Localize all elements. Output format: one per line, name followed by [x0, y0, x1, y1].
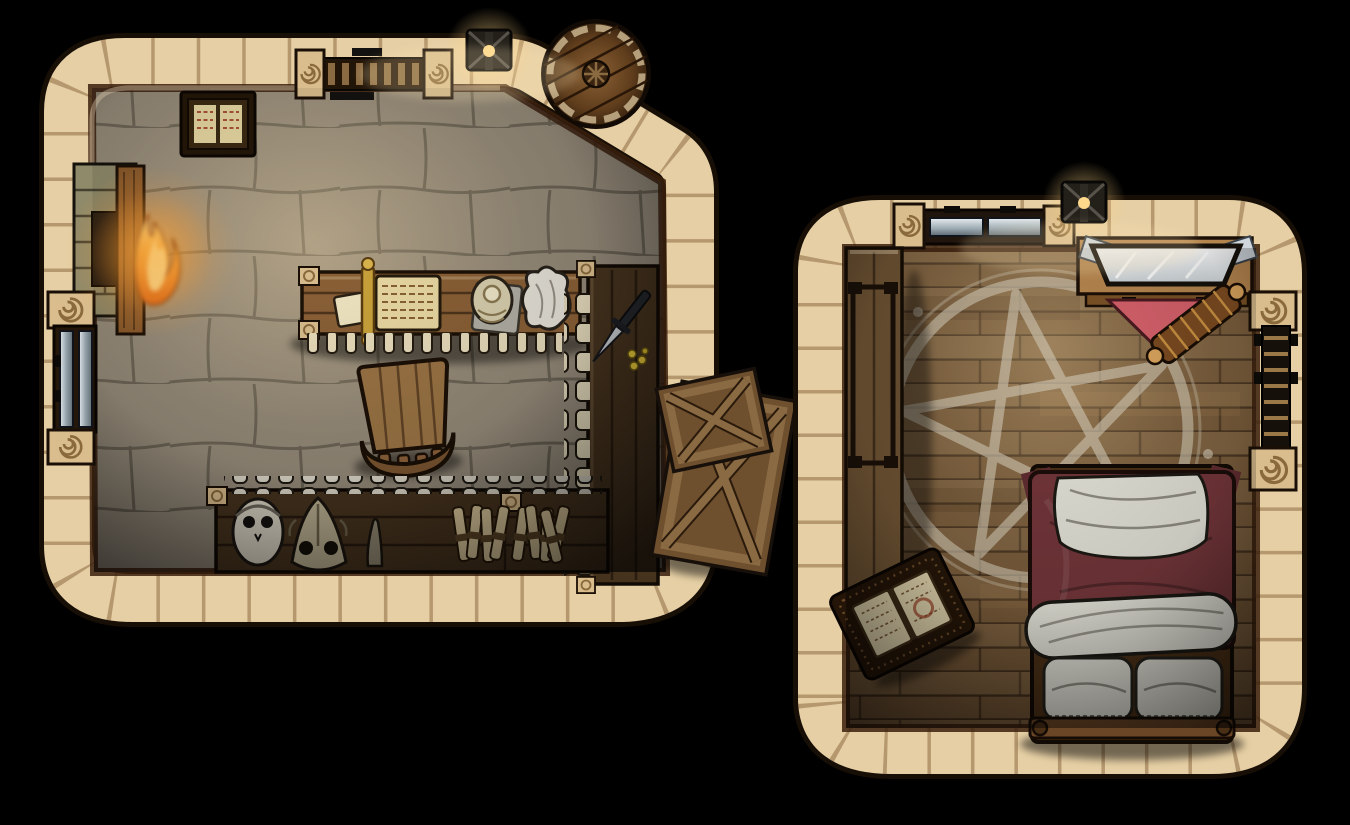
battlemap-stage — [0, 0, 1350, 825]
wall-light-patch — [960, 222, 1200, 274]
fire-floor-glow — [66, 166, 238, 338]
door-handle — [55, 355, 61, 367]
battlemap — [0, 0, 1350, 825]
door-handle — [55, 390, 61, 402]
wall-light-patch — [360, 46, 580, 102]
room-ritual-bedroom — [822, 161, 1298, 760]
wall-lantern-icon[interactable] — [1062, 182, 1106, 222]
room-workshop — [48, 7, 690, 598]
door-panel — [60, 331, 73, 427]
workshop-left-door[interactable] — [48, 292, 96, 464]
bedroom-vignette — [846, 248, 1256, 728]
door-panel — [79, 331, 92, 427]
